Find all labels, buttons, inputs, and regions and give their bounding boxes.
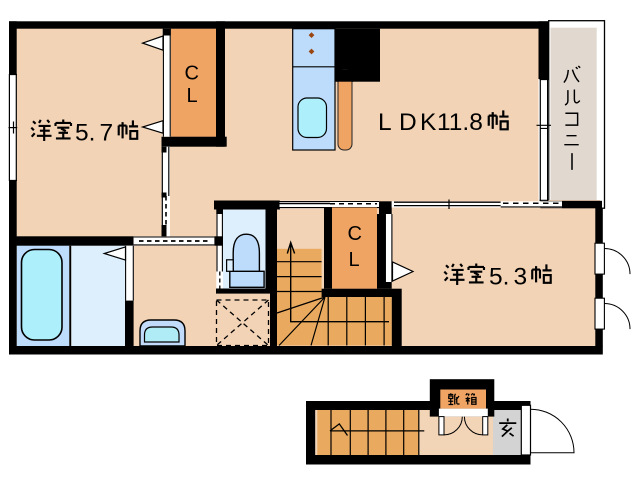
svg-text:7: 7 (100, 120, 114, 147)
svg-text:C: C (185, 63, 199, 85)
svg-text:5.: 5. (489, 264, 509, 291)
svg-text:K: K (420, 109, 437, 136)
svg-text:C: C (348, 223, 362, 245)
svg-text:11.8: 11.8 (437, 109, 483, 136)
svg-text:L: L (349, 249, 360, 271)
svg-text:D: D (399, 109, 417, 136)
svg-text:5.: 5. (75, 120, 95, 147)
svg-text:3: 3 (514, 264, 528, 291)
svg-text:L: L (378, 109, 392, 136)
svg-text:L: L (187, 85, 198, 107)
